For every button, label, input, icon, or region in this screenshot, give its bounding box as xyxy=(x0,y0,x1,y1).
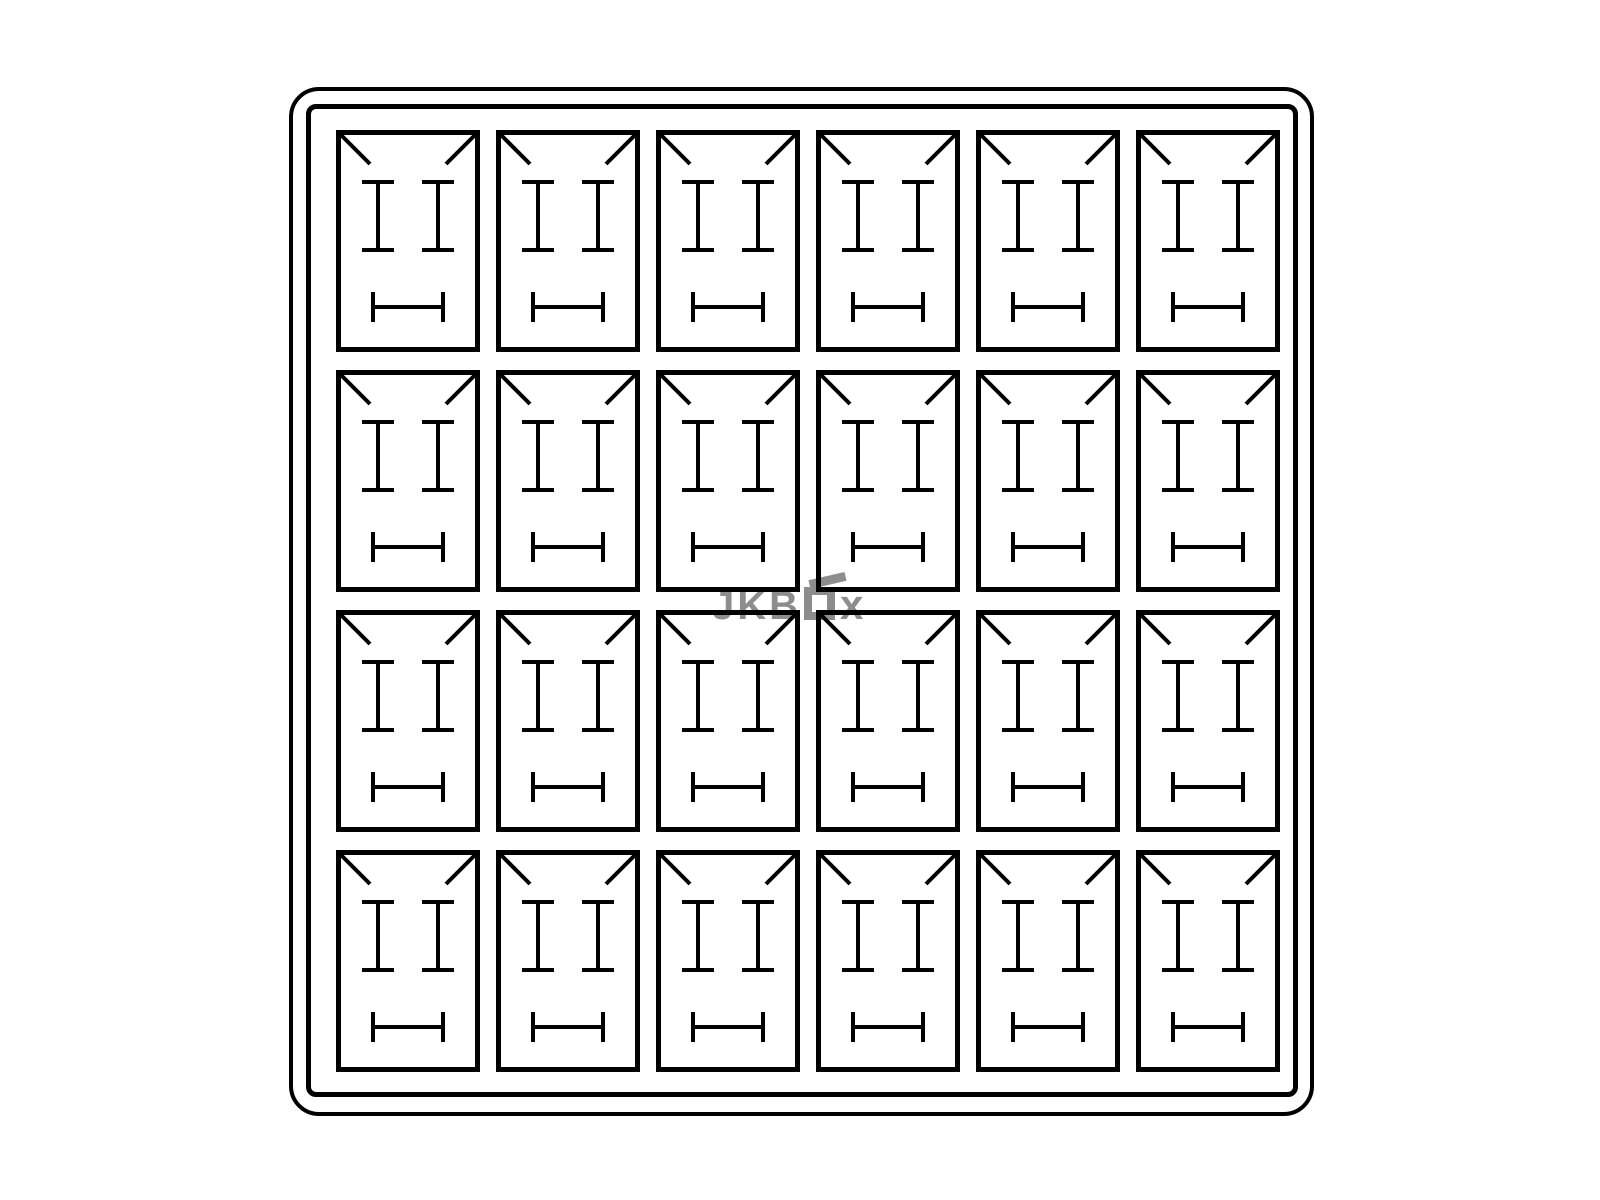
ring-clip-left-icon xyxy=(842,662,874,730)
ring-clip-bottom-icon xyxy=(1173,532,1243,562)
slot-outline xyxy=(1139,373,1278,590)
ring-clip-left-icon xyxy=(362,902,394,970)
ring-clip-bottom-icon xyxy=(853,1012,923,1042)
slot-outline xyxy=(339,133,478,350)
corner-notch-marks-icon xyxy=(981,855,1115,884)
ring-clip-right-icon xyxy=(422,902,454,970)
ring-slot-cell xyxy=(336,850,480,1072)
slot-outline xyxy=(819,853,958,1070)
ring-slot-cell xyxy=(656,850,800,1072)
ring-clip-right-icon xyxy=(1062,422,1094,490)
ring-clip-bottom-icon xyxy=(373,292,443,322)
corner-notch-marks-icon xyxy=(501,615,635,644)
ring-clip-bottom-icon xyxy=(1173,772,1243,802)
ring-slot-cell xyxy=(1136,850,1280,1072)
ring-clip-left-icon xyxy=(522,422,554,490)
corner-notch-marks-icon xyxy=(501,855,635,884)
corner-notch-marks-icon xyxy=(341,375,475,404)
slot-outline xyxy=(819,613,958,830)
ring-clip-left-icon xyxy=(682,902,714,970)
corner-notch-marks-icon xyxy=(1141,135,1275,164)
ring-clip-left-icon xyxy=(362,662,394,730)
corner-notch-marks-icon xyxy=(981,375,1115,404)
ring-clip-bottom-icon xyxy=(373,1012,443,1042)
ring-slot-cell xyxy=(336,370,480,592)
ring-slot-cell xyxy=(656,610,800,832)
ring-clip-right-icon xyxy=(1222,662,1254,730)
slot-outline xyxy=(979,133,1118,350)
ring-clip-left-icon xyxy=(1162,422,1194,490)
ring-slot-cell xyxy=(976,850,1120,1072)
ring-clip-left-icon xyxy=(842,422,874,490)
ring-clip-right-icon xyxy=(582,902,614,970)
slot-outline xyxy=(1139,613,1278,830)
ring-slot-cell xyxy=(976,370,1120,592)
corner-notch-marks-icon xyxy=(1141,615,1275,644)
ring-clip-bottom-icon xyxy=(853,532,923,562)
ring-clip-left-icon xyxy=(522,902,554,970)
ring-clip-left-icon xyxy=(522,182,554,250)
corner-notch-marks-icon xyxy=(341,135,475,164)
slot-outline xyxy=(339,613,478,830)
ring-clip-right-icon xyxy=(582,182,614,250)
ring-clip-right-icon xyxy=(902,902,934,970)
ring-clip-right-icon xyxy=(1222,422,1254,490)
ring-clip-bottom-icon xyxy=(853,292,923,322)
slot-outline xyxy=(819,373,958,590)
slot-outline xyxy=(659,613,798,830)
ring-clip-bottom-icon xyxy=(1173,1012,1243,1042)
ring-clip-bottom-icon xyxy=(533,772,603,802)
corner-notch-marks-icon xyxy=(981,135,1115,164)
corner-notch-marks-icon xyxy=(821,375,955,404)
ring-clip-right-icon xyxy=(1062,182,1094,250)
ring-slot-cell xyxy=(1136,610,1280,832)
ring-clip-left-icon xyxy=(362,422,394,490)
ring-clip-right-icon xyxy=(1062,662,1094,730)
ring-clip-right-icon xyxy=(742,182,774,250)
ring-clip-right-icon xyxy=(742,662,774,730)
ring-clip-left-icon xyxy=(682,182,714,250)
ring-clip-bottom-icon xyxy=(1173,292,1243,322)
slot-outline xyxy=(659,853,798,1070)
ring-clip-left-icon xyxy=(682,422,714,490)
corner-notch-marks-icon xyxy=(501,135,635,164)
corner-notch-marks-icon xyxy=(661,375,795,404)
ring-clip-right-icon xyxy=(1062,902,1094,970)
slot-outline xyxy=(499,613,638,830)
ring-clip-right-icon xyxy=(1222,182,1254,250)
corner-notch-marks-icon xyxy=(501,375,635,404)
slot-outline xyxy=(979,613,1118,830)
ring-clip-left-icon xyxy=(1002,422,1034,490)
ring-clip-left-icon xyxy=(362,182,394,250)
ring-clip-bottom-icon xyxy=(693,292,763,322)
tray-diagram-canvas: JKB x xyxy=(0,0,1600,1200)
ring-clip-bottom-icon xyxy=(373,772,443,802)
ring-slot-cell xyxy=(496,850,640,1072)
ring-clip-right-icon xyxy=(422,422,454,490)
ring-clip-left-icon xyxy=(682,662,714,730)
ring-clip-left-icon xyxy=(1162,902,1194,970)
ring-clip-left-icon xyxy=(1162,662,1194,730)
slot-outline xyxy=(1139,133,1278,350)
ring-clip-left-icon xyxy=(842,182,874,250)
ring-clip-right-icon xyxy=(742,902,774,970)
slot-outline xyxy=(499,133,638,350)
ring-clip-bottom-icon xyxy=(1013,772,1083,802)
slot-outline xyxy=(979,373,1118,590)
ring-slot-cell xyxy=(816,610,960,832)
corner-notch-marks-icon xyxy=(661,615,795,644)
slot-outline xyxy=(339,373,478,590)
corner-notch-marks-icon xyxy=(661,135,795,164)
slot-outline xyxy=(339,853,478,1070)
corner-notch-marks-icon xyxy=(821,855,955,884)
corner-notch-marks-icon xyxy=(661,855,795,884)
ring-clip-right-icon xyxy=(902,422,934,490)
slot-outline xyxy=(979,853,1118,1070)
ring-clip-right-icon xyxy=(582,662,614,730)
ring-clip-right-icon xyxy=(422,182,454,250)
ring-slot-cell xyxy=(656,130,800,352)
ring-slot-cell xyxy=(816,130,960,352)
ring-clip-bottom-icon xyxy=(693,772,763,802)
ring-clip-bottom-icon xyxy=(373,532,443,562)
corner-notch-marks-icon xyxy=(821,615,955,644)
ring-clip-bottom-icon xyxy=(1013,1012,1083,1042)
ring-slot-cell xyxy=(496,370,640,592)
ring-clip-right-icon xyxy=(1222,902,1254,970)
ring-slot-cell xyxy=(816,850,960,1072)
ring-clip-bottom-icon xyxy=(693,1012,763,1042)
corner-notch-marks-icon xyxy=(981,615,1115,644)
ring-clip-bottom-icon xyxy=(533,532,603,562)
corner-notch-marks-icon xyxy=(1141,855,1275,884)
corner-notch-marks-icon xyxy=(341,855,475,884)
ring-slot-cell xyxy=(1136,370,1280,592)
ring-slot-cell xyxy=(976,610,1120,832)
ring-clip-right-icon xyxy=(582,422,614,490)
ring-clip-left-icon xyxy=(842,902,874,970)
ring-clip-bottom-icon xyxy=(693,532,763,562)
corner-notch-marks-icon xyxy=(341,615,475,644)
ring-slot-cell xyxy=(1136,130,1280,352)
ring-clip-left-icon xyxy=(1002,902,1034,970)
slot-outline xyxy=(659,373,798,590)
ring-clip-bottom-icon xyxy=(853,772,923,802)
corner-notch-marks-icon xyxy=(821,135,955,164)
ring-clip-bottom-icon xyxy=(1013,532,1083,562)
slot-outline xyxy=(1139,853,1278,1070)
slot-outline xyxy=(499,853,638,1070)
ring-clip-left-icon xyxy=(1002,182,1034,250)
ring-slot-cell xyxy=(816,370,960,592)
ring-slot-cell xyxy=(336,610,480,832)
ring-clip-right-icon xyxy=(902,182,934,250)
ring-clip-bottom-icon xyxy=(533,1012,603,1042)
ring-slot-cell xyxy=(336,130,480,352)
corner-notch-marks-icon xyxy=(1141,375,1275,404)
ring-clip-left-icon xyxy=(1162,182,1194,250)
ring-slot-cell xyxy=(496,130,640,352)
ring-slot-cell xyxy=(976,130,1120,352)
slot-grid xyxy=(336,130,1280,1072)
ring-slot-cell xyxy=(656,370,800,592)
ring-clip-left-icon xyxy=(522,662,554,730)
ring-slot-cell xyxy=(496,610,640,832)
slot-outline xyxy=(819,133,958,350)
ring-clip-left-icon xyxy=(1002,662,1034,730)
ring-clip-right-icon xyxy=(742,422,774,490)
slot-outline xyxy=(659,133,798,350)
ring-clip-bottom-icon xyxy=(1013,292,1083,322)
ring-clip-bottom-icon xyxy=(533,292,603,322)
slot-outline xyxy=(499,373,638,590)
ring-clip-right-icon xyxy=(422,662,454,730)
ring-clip-right-icon xyxy=(902,662,934,730)
